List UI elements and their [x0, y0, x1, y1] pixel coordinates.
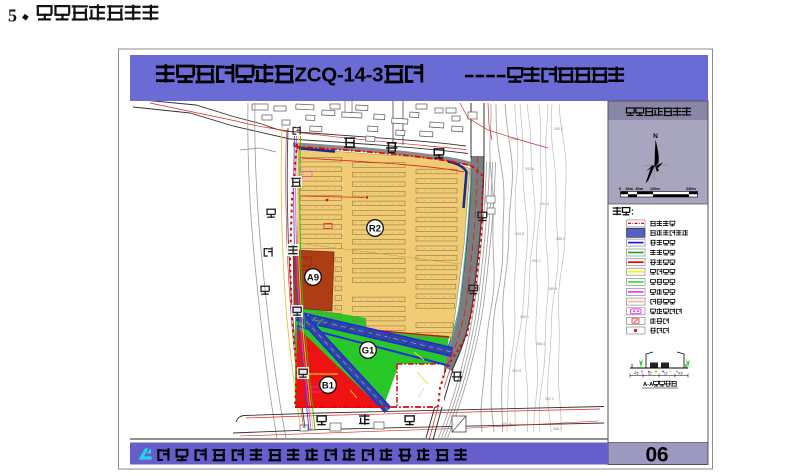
- svg-text:G1: G1: [362, 345, 375, 356]
- svg-text:R2: R2: [369, 223, 381, 234]
- svg-text:ZCQ-14-3: ZCQ-14-3: [295, 64, 384, 87]
- svg-text:N: N: [653, 133, 658, 140]
- svg-text:391.4: 391.4: [540, 202, 549, 206]
- svg-text:389.6: 389.6: [548, 287, 557, 291]
- svg-text:390.2: 390.2: [532, 259, 541, 263]
- svg-text:0: 0: [619, 187, 621, 191]
- svg-text:12: 12: [664, 372, 668, 376]
- svg-text:06: 06: [646, 444, 669, 467]
- svg-text:390.8: 390.8: [512, 369, 521, 373]
- svg-text:392.6: 392.6: [525, 167, 534, 171]
- svg-text:386.7: 386.7: [553, 427, 562, 431]
- svg-text:120m: 120m: [650, 187, 660, 191]
- svg-text:A9: A9: [307, 272, 319, 283]
- svg-text:12: 12: [648, 372, 652, 376]
- svg-text:A-A: A-A: [643, 382, 654, 388]
- svg-text:388.4: 388.4: [536, 342, 545, 346]
- svg-text:392.1: 392.1: [520, 315, 529, 319]
- svg-text:30m: 30m: [626, 187, 634, 191]
- svg-text:B1: B1: [322, 380, 335, 391]
- svg-text:395.0: 395.0: [554, 127, 563, 131]
- svg-text:393.8: 393.8: [515, 232, 524, 236]
- svg-text:4.5: 4.5: [678, 372, 683, 376]
- svg-text:5: 5: [8, 6, 17, 26]
- svg-text:4.5: 4.5: [634, 372, 639, 376]
- svg-text:60m: 60m: [636, 187, 644, 191]
- svg-text:388.9: 388.9: [556, 237, 565, 241]
- svg-text::: :: [631, 207, 634, 217]
- svg-text:240m: 240m: [686, 187, 696, 191]
- svg-text:387.2: 387.2: [545, 397, 554, 401]
